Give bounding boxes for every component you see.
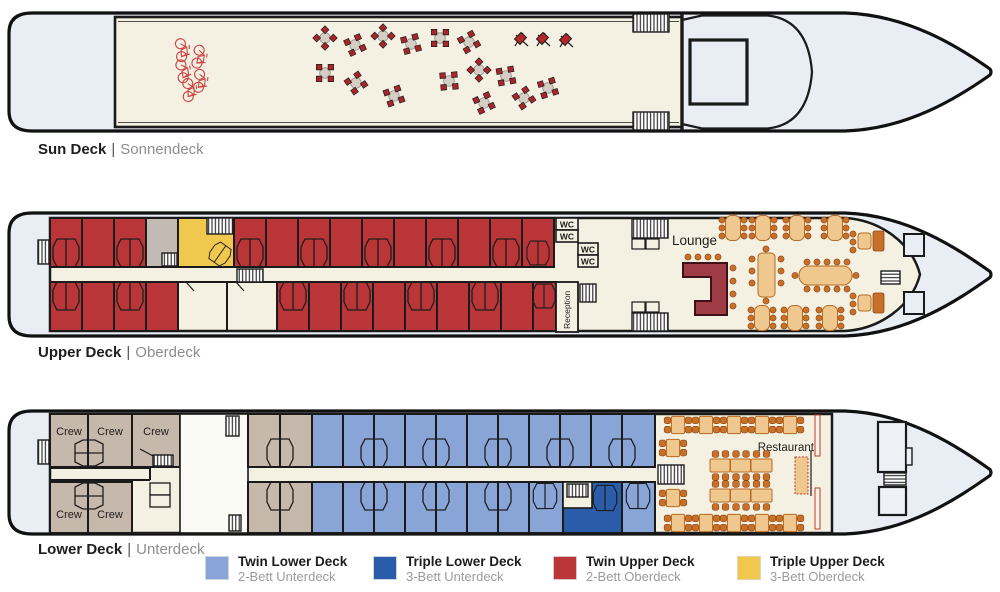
legend-label: Twin Lower Deck xyxy=(238,554,347,569)
label-separator: | xyxy=(126,344,130,361)
bow-room xyxy=(904,292,924,314)
label-separator: | xyxy=(127,541,131,558)
stairs-icon xyxy=(881,271,900,284)
twin-upper-cabins-bottom xyxy=(50,282,556,331)
reception-label: Reception xyxy=(562,290,572,329)
stairs-icon xyxy=(237,269,263,282)
sun-deck-name: Sun Deck xyxy=(38,141,106,158)
wc-label: WC xyxy=(560,220,574,230)
stairs-icon xyxy=(153,455,173,466)
legend-label: Triple Lower Deck xyxy=(406,554,522,569)
legend-item-triple-upper: Triple Upper Deck 3-Bett Oberdeck xyxy=(737,554,885,584)
crew-label: Crew xyxy=(97,509,123,521)
stairs-icon xyxy=(226,416,239,436)
legend-sublabel: 2-Bett Unterdeck xyxy=(238,569,347,584)
bow-room xyxy=(904,234,924,256)
buffet-counter xyxy=(795,457,808,494)
upper-deck-name-de: Oberdeck xyxy=(135,344,200,361)
upper-deck-plan: WC WC WC WC Reception Lounge xyxy=(0,205,1000,355)
stairs-icon xyxy=(162,253,177,266)
sideboard xyxy=(815,415,820,456)
stairs-icon xyxy=(229,515,241,531)
legend-label: Triple Upper Deck xyxy=(770,554,885,569)
crew-label: Crew xyxy=(56,426,82,438)
wc-label: WC xyxy=(581,245,595,255)
upper-deck-label: Upper Deck|Oberdeck xyxy=(38,344,200,361)
legend-sublabel: 2-Bett Oberdeck xyxy=(586,569,695,584)
wc-label: WC xyxy=(581,257,595,267)
stairs-icon xyxy=(567,484,588,497)
lower-deck-label: Lower Deck|Unterdeck xyxy=(38,541,204,558)
stairs-icon xyxy=(207,218,233,234)
legend-sublabel: 3-Bett Oberdeck xyxy=(770,569,885,584)
sun-deck-label: Sun Deck|Sonnendeck xyxy=(38,141,204,158)
wheelhouse xyxy=(690,40,747,104)
stairs-icon xyxy=(633,14,669,32)
twin-upper-cabins xyxy=(50,218,554,268)
stairs-icon xyxy=(633,112,669,130)
legend-item-twin-upper: Twin Upper Deck 2-Bett Oberdeck xyxy=(553,554,695,584)
stairs-icon xyxy=(658,465,684,484)
restaurant: Restaurant xyxy=(655,414,820,533)
lower-deck-plan: Crew Crew Crew Crew Crew xyxy=(0,403,1000,543)
lower-deck-name: Lower Deck xyxy=(38,541,122,558)
sun-deck-name-de: Sonnendeck xyxy=(120,141,203,158)
sun-deck-open-area xyxy=(115,17,682,127)
lower-deck-name-de: Unterdeck xyxy=(136,541,204,558)
legend-swatch-twin-upper xyxy=(553,556,577,580)
bow-rooms xyxy=(878,422,912,515)
stairs-icon xyxy=(632,219,668,238)
stairs-icon xyxy=(884,473,906,485)
stair-lobby xyxy=(563,482,592,508)
lounge-label: Lounge xyxy=(672,233,717,248)
crew-label: Crew xyxy=(97,426,123,438)
sideboard xyxy=(815,488,820,529)
legend-label: Twin Upper Deck xyxy=(586,554,695,569)
upper-deck-name: Upper Deck xyxy=(38,344,121,361)
legend-swatch-twin-lower xyxy=(205,556,229,580)
wc-label: WC xyxy=(560,232,574,242)
service-zone xyxy=(180,414,248,533)
crew-label: Crew xyxy=(56,509,82,521)
label-separator: | xyxy=(111,141,115,158)
stairs-icon xyxy=(580,284,596,302)
ship-deck-plan: WC WC WC WC Reception Lounge xyxy=(0,0,1000,592)
legend-swatch-triple-upper xyxy=(737,556,761,580)
legend-sublabel: 3-Bett Unterdeck xyxy=(406,569,522,584)
legend-swatch-triple-lower xyxy=(373,556,397,580)
crew-label: Crew xyxy=(143,426,169,438)
stairs-icon xyxy=(632,313,668,331)
legend-item-twin-lower: Twin Lower Deck 2-Bett Unterdeck xyxy=(205,554,347,584)
legend-item-triple-lower: Triple Lower Deck 3-Bett Unterdeck xyxy=(373,554,522,584)
